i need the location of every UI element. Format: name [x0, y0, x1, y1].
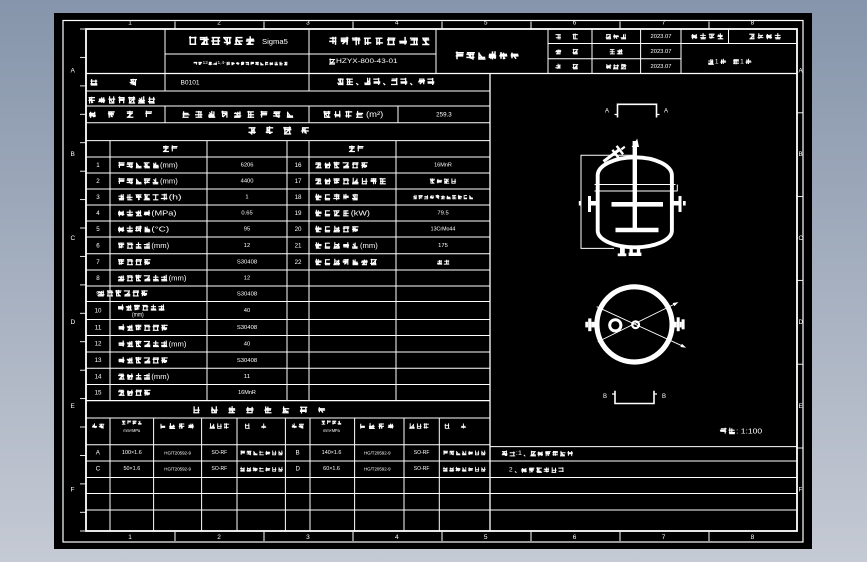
svg-text:A: A: [71, 67, 76, 74]
svg-text:50×1.6: 50×1.6: [124, 466, 141, 472]
svg-text:40: 40: [244, 308, 250, 314]
svg-text:0.65: 0.65: [241, 211, 252, 217]
svg-text:3: 3: [306, 534, 310, 541]
svg-text:12: 12: [244, 276, 250, 282]
svg-text:8: 8: [751, 20, 755, 27]
svg-text:(h): (h): [169, 193, 182, 202]
svg-text:C: C: [799, 235, 804, 242]
svg-text:16MnR: 16MnR: [238, 390, 256, 396]
svg-text:10: 10: [95, 308, 102, 315]
svg-text:: 1:100: : 1:100: [736, 427, 762, 436]
svg-text:HZYX-800-43-01: HZYX-800-43-01: [336, 58, 398, 65]
svg-text:8: 8: [96, 275, 100, 282]
svg-text:95: 95: [244, 227, 250, 233]
svg-text:79.5: 79.5: [437, 211, 448, 217]
svg-text:S30408: S30408: [237, 358, 257, 364]
svg-text:12: 12: [203, 60, 209, 66]
svg-text:E: E: [71, 403, 76, 410]
svg-text:175: 175: [438, 243, 448, 249]
svg-text::1: :1: [516, 450, 523, 457]
svg-text:B: B: [296, 449, 300, 456]
svg-text:16: 16: [295, 162, 302, 169]
svg-text:7: 7: [662, 20, 666, 27]
svg-text:Sigma5: Sigma5: [262, 37, 288, 46]
svg-text:40: 40: [244, 341, 250, 347]
svg-text:A: A: [664, 109, 668, 115]
svg-text:15: 15: [95, 390, 102, 397]
svg-text:(MPa): (MPa): [151, 209, 176, 218]
svg-text:SO-RF: SO-RF: [212, 466, 228, 472]
svg-text:S30408: S30408: [237, 260, 257, 266]
svg-text:(°C): (°C): [151, 225, 169, 234]
svg-text:3: 3: [306, 20, 310, 27]
svg-text:1: 1: [740, 58, 744, 65]
svg-text:1: 1: [128, 20, 132, 27]
svg-text:B: B: [799, 151, 803, 158]
svg-text:(mm): (mm): [160, 161, 178, 170]
svg-text:20: 20: [295, 226, 302, 233]
svg-text:E: E: [799, 403, 803, 410]
svg-text:B: B: [603, 394, 607, 400]
svg-text:(mm): (mm): [151, 372, 169, 381]
svg-text:259.3: 259.3: [436, 112, 452, 119]
svg-text:(mm): (mm): [151, 241, 169, 250]
svg-text:11: 11: [244, 374, 250, 380]
svg-text:18: 18: [295, 194, 302, 201]
svg-text:(mm): (mm): [360, 241, 378, 250]
svg-text:6: 6: [573, 534, 577, 541]
svg-text:B: B: [662, 394, 666, 400]
svg-text:6: 6: [96, 242, 100, 249]
svg-text:5: 5: [96, 226, 100, 233]
svg-text:1: 1: [128, 534, 132, 541]
svg-text:(kW): (kW): [351, 209, 370, 218]
svg-text:SO-RF: SO-RF: [414, 450, 430, 456]
svg-text:140×1.6: 140×1.6: [322, 450, 342, 456]
svg-text:D: D: [71, 319, 76, 326]
svg-text:HG/T20592-9: HG/T20592-9: [164, 467, 191, 472]
svg-text:S30408: S30408: [237, 291, 257, 297]
svg-text:8: 8: [751, 534, 755, 541]
svg-text:12: 12: [244, 243, 250, 249]
svg-text:2023.07: 2023.07: [651, 49, 672, 55]
svg-text:HG/T20592-9: HG/T20592-9: [164, 450, 191, 455]
svg-text:1: 1: [96, 162, 100, 169]
svg-text:100×1.6: 100×1.6: [122, 450, 142, 456]
svg-text:1: 1: [715, 58, 719, 65]
svg-text:21: 21: [295, 242, 302, 249]
svg-text:17: 17: [295, 178, 302, 185]
svg-text:14: 14: [95, 373, 102, 380]
svg-text:3: 3: [96, 194, 100, 201]
svg-text:6: 6: [573, 20, 577, 27]
svg-text:2: 2: [217, 534, 221, 541]
svg-text:7: 7: [96, 259, 100, 266]
svg-text:5: 5: [484, 20, 488, 27]
svg-text:D: D: [799, 319, 804, 326]
svg-text:1: 1: [245, 195, 248, 201]
svg-text:(mm): (mm): [132, 312, 144, 319]
svg-text:D: D: [296, 466, 301, 473]
svg-text:22: 22: [295, 259, 302, 266]
svg-text:mm×MPa: mm×MPa: [323, 428, 340, 433]
svg-text:A: A: [605, 109, 609, 115]
svg-text:4: 4: [395, 20, 399, 27]
svg-text:5: 5: [484, 534, 488, 541]
svg-text:60×1.6: 60×1.6: [323, 466, 340, 472]
svg-text:C: C: [96, 466, 101, 473]
svg-text:1,4-: 1,4-: [218, 60, 227, 66]
svg-text:12: 12: [95, 341, 102, 348]
svg-text:F: F: [71, 487, 75, 494]
svg-text:2023.07: 2023.07: [651, 34, 672, 40]
svg-text:F: F: [799, 487, 803, 494]
svg-text:HG/T20592-9: HG/T20592-9: [364, 450, 391, 455]
svg-text:2023.07: 2023.07: [651, 64, 672, 70]
svg-text:B: B: [71, 151, 75, 158]
svg-text:2: 2: [96, 178, 100, 185]
svg-text:13: 13: [95, 357, 102, 364]
svg-text:4: 4: [96, 210, 100, 217]
svg-text:S30408: S30408: [237, 325, 257, 331]
svg-text:SO-RF: SO-RF: [414, 466, 430, 472]
svg-text:mm×MPa: mm×MPa: [123, 428, 140, 433]
svg-text:2: 2: [217, 20, 221, 27]
svg-text:B0101: B0101: [181, 80, 200, 87]
svg-text:SO-RF: SO-RF: [212, 450, 228, 456]
svg-text:HG/T20592-9: HG/T20592-9: [364, 467, 391, 472]
svg-text:11: 11: [95, 325, 102, 332]
svg-text:(mm): (mm): [169, 274, 187, 283]
svg-text:(m²): (m²): [366, 110, 384, 119]
svg-text:(mm): (mm): [160, 177, 178, 186]
svg-text:4400: 4400: [241, 179, 254, 185]
svg-text:16MnR: 16MnR: [434, 163, 452, 169]
svg-text:(mm): (mm): [169, 339, 187, 348]
svg-text:13CrMo44: 13CrMo44: [431, 227, 456, 233]
svg-text:6206: 6206: [241, 163, 254, 169]
svg-text:19: 19: [295, 210, 302, 217]
svg-text:4: 4: [395, 534, 399, 541]
svg-text:C: C: [71, 235, 76, 242]
svg-text:7: 7: [662, 534, 666, 541]
svg-text:2: 2: [509, 467, 513, 474]
